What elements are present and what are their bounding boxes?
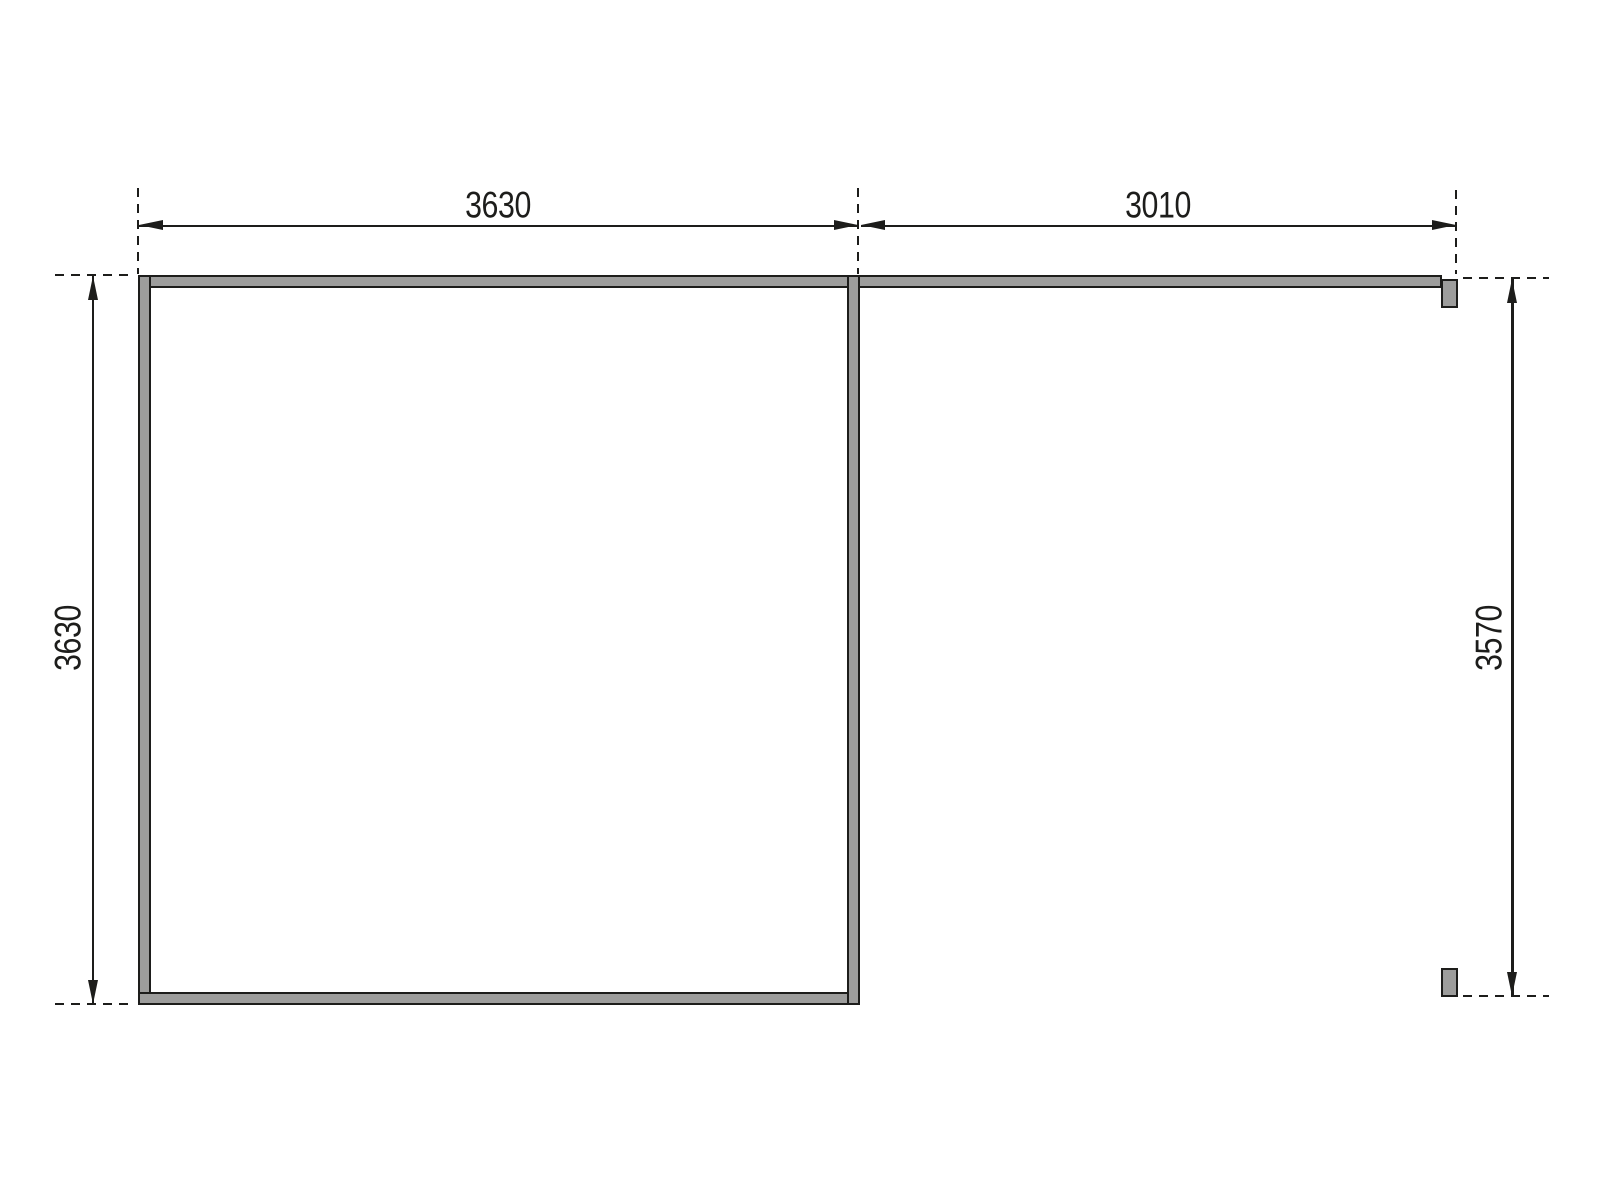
dimension-line-height-room <box>92 276 95 1004</box>
dim-width-room-label: 3630 <box>465 187 531 224</box>
left-wall <box>138 275 151 1005</box>
extension-line-top-right <box>1455 190 1458 274</box>
top-wall <box>138 275 1442 288</box>
dimension-line-height-annex <box>1511 279 1514 996</box>
extension-line-top-middle <box>857 188 860 274</box>
arrowhead-left <box>139 220 163 230</box>
arrowhead-right <box>1432 220 1456 230</box>
arrowhead-down <box>88 980 98 1004</box>
arrowhead-right <box>834 220 858 230</box>
dim-height-room-label: 3630 <box>50 605 87 671</box>
arrowhead-up <box>1507 279 1517 303</box>
arrowhead-up <box>88 276 98 300</box>
arrowhead-left <box>861 220 885 230</box>
corner-post-bottom-right <box>1441 968 1458 997</box>
dim-width-annex-label: 3010 <box>1125 187 1191 224</box>
dimension-drawing: 3630 3010 3630 3570 <box>0 0 1600 1200</box>
arrowhead-down <box>1507 972 1517 996</box>
dim-height-annex-label: 3570 <box>1471 605 1508 671</box>
corner-post-top-right <box>1441 279 1458 308</box>
bottom-wall <box>138 992 860 1005</box>
partition-wall <box>847 275 860 1005</box>
extension-line-top-left <box>137 188 140 274</box>
